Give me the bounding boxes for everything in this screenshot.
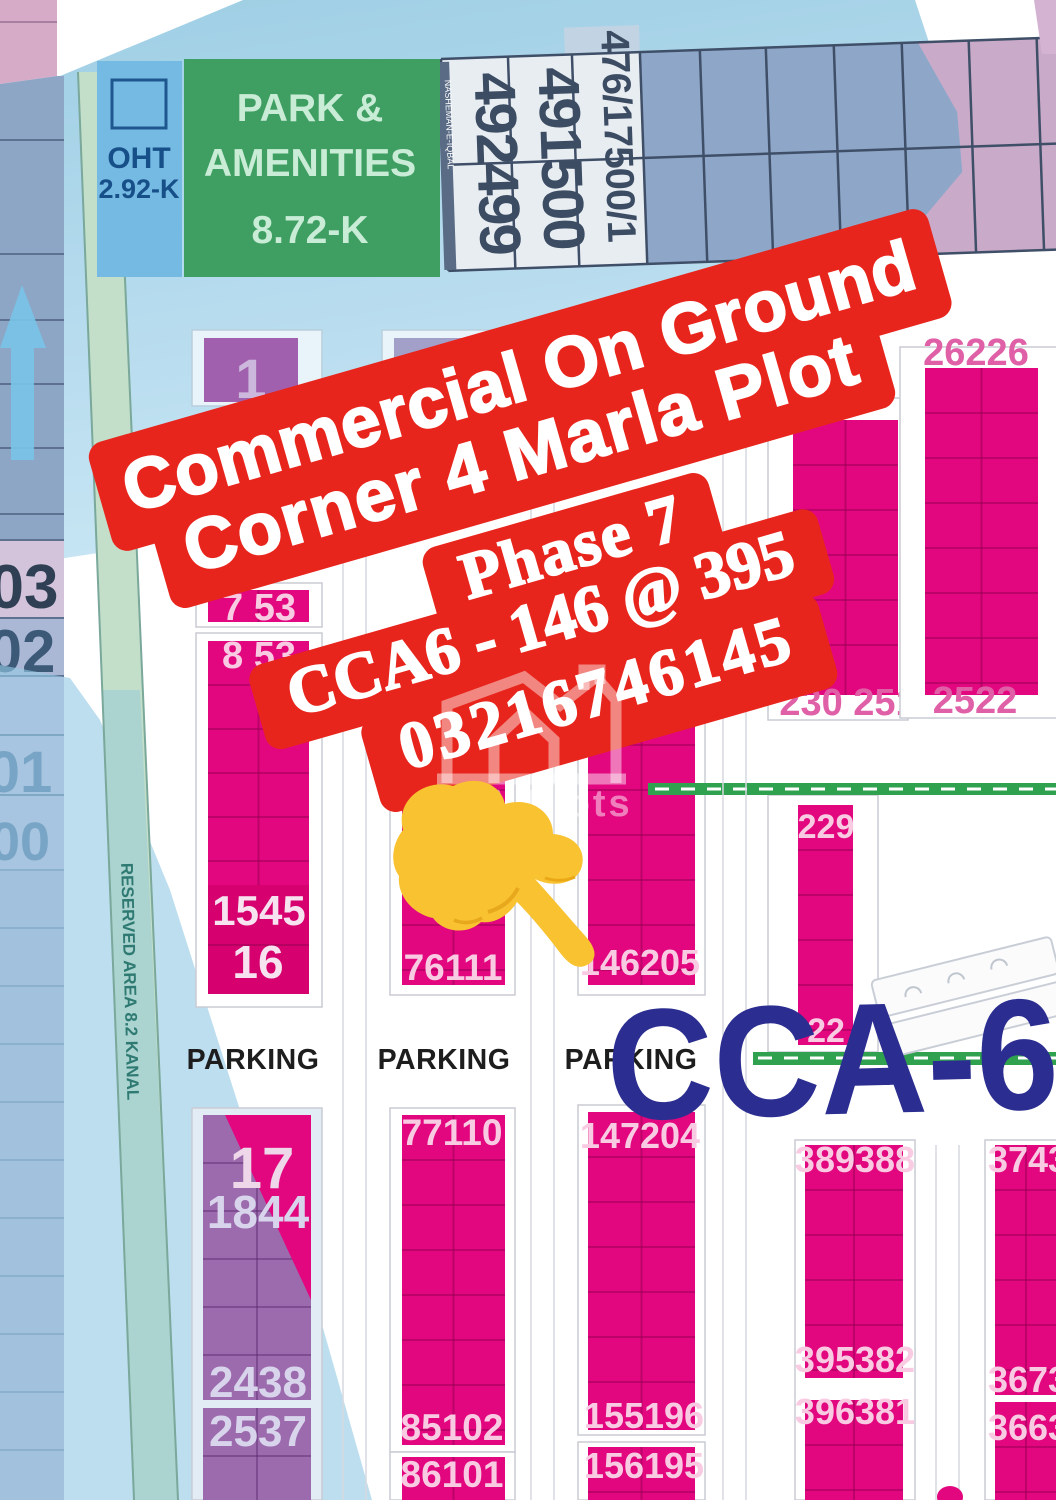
svg-text:86101: 86101 <box>401 1454 504 1495</box>
svg-text:03: 03 <box>0 553 58 622</box>
svg-text:395382: 395382 <box>795 1339 915 1380</box>
svg-text:1545: 1545 <box>212 887 305 934</box>
svg-text:CCA-6: CCA-6 <box>604 966 1056 1154</box>
svg-text:1844: 1844 <box>207 1186 310 1238</box>
svg-text:491500: 491500 <box>525 66 596 250</box>
svg-text:156195: 156195 <box>584 1445 704 1486</box>
svg-text:PARK &: PARK & <box>237 87 384 130</box>
svg-text:2.92-K: 2.92-K <box>98 174 180 204</box>
svg-text:3663: 3663 <box>988 1407 1056 1448</box>
svg-text:3673: 3673 <box>988 1359 1056 1400</box>
svg-text:AMENITIES: AMENITIES <box>204 142 416 185</box>
svg-text:2522: 2522 <box>933 680 1018 722</box>
svg-text:77110: 77110 <box>402 1112 503 1153</box>
svg-text:476/17500/1: 476/17500/1 <box>592 29 643 243</box>
svg-text:16: 16 <box>232 936 283 988</box>
svg-text:492499: 492499 <box>462 71 533 255</box>
svg-text:3743: 3743 <box>988 1139 1056 1180</box>
svg-text:8.72-K: 8.72-K <box>251 209 368 252</box>
svg-text:85102: 85102 <box>401 1407 504 1448</box>
svg-text:229: 229 <box>798 808 855 846</box>
svg-text:2438: 2438 <box>209 1358 307 1407</box>
svg-text:155196: 155196 <box>584 1395 704 1436</box>
svg-text:2537: 2537 <box>209 1407 307 1456</box>
svg-text:396381: 396381 <box>795 1391 915 1432</box>
svg-text:PARKING: PARKING <box>187 1044 320 1076</box>
svg-text:OHT: OHT <box>107 142 170 175</box>
svg-text:PARKING: PARKING <box>378 1044 511 1076</box>
